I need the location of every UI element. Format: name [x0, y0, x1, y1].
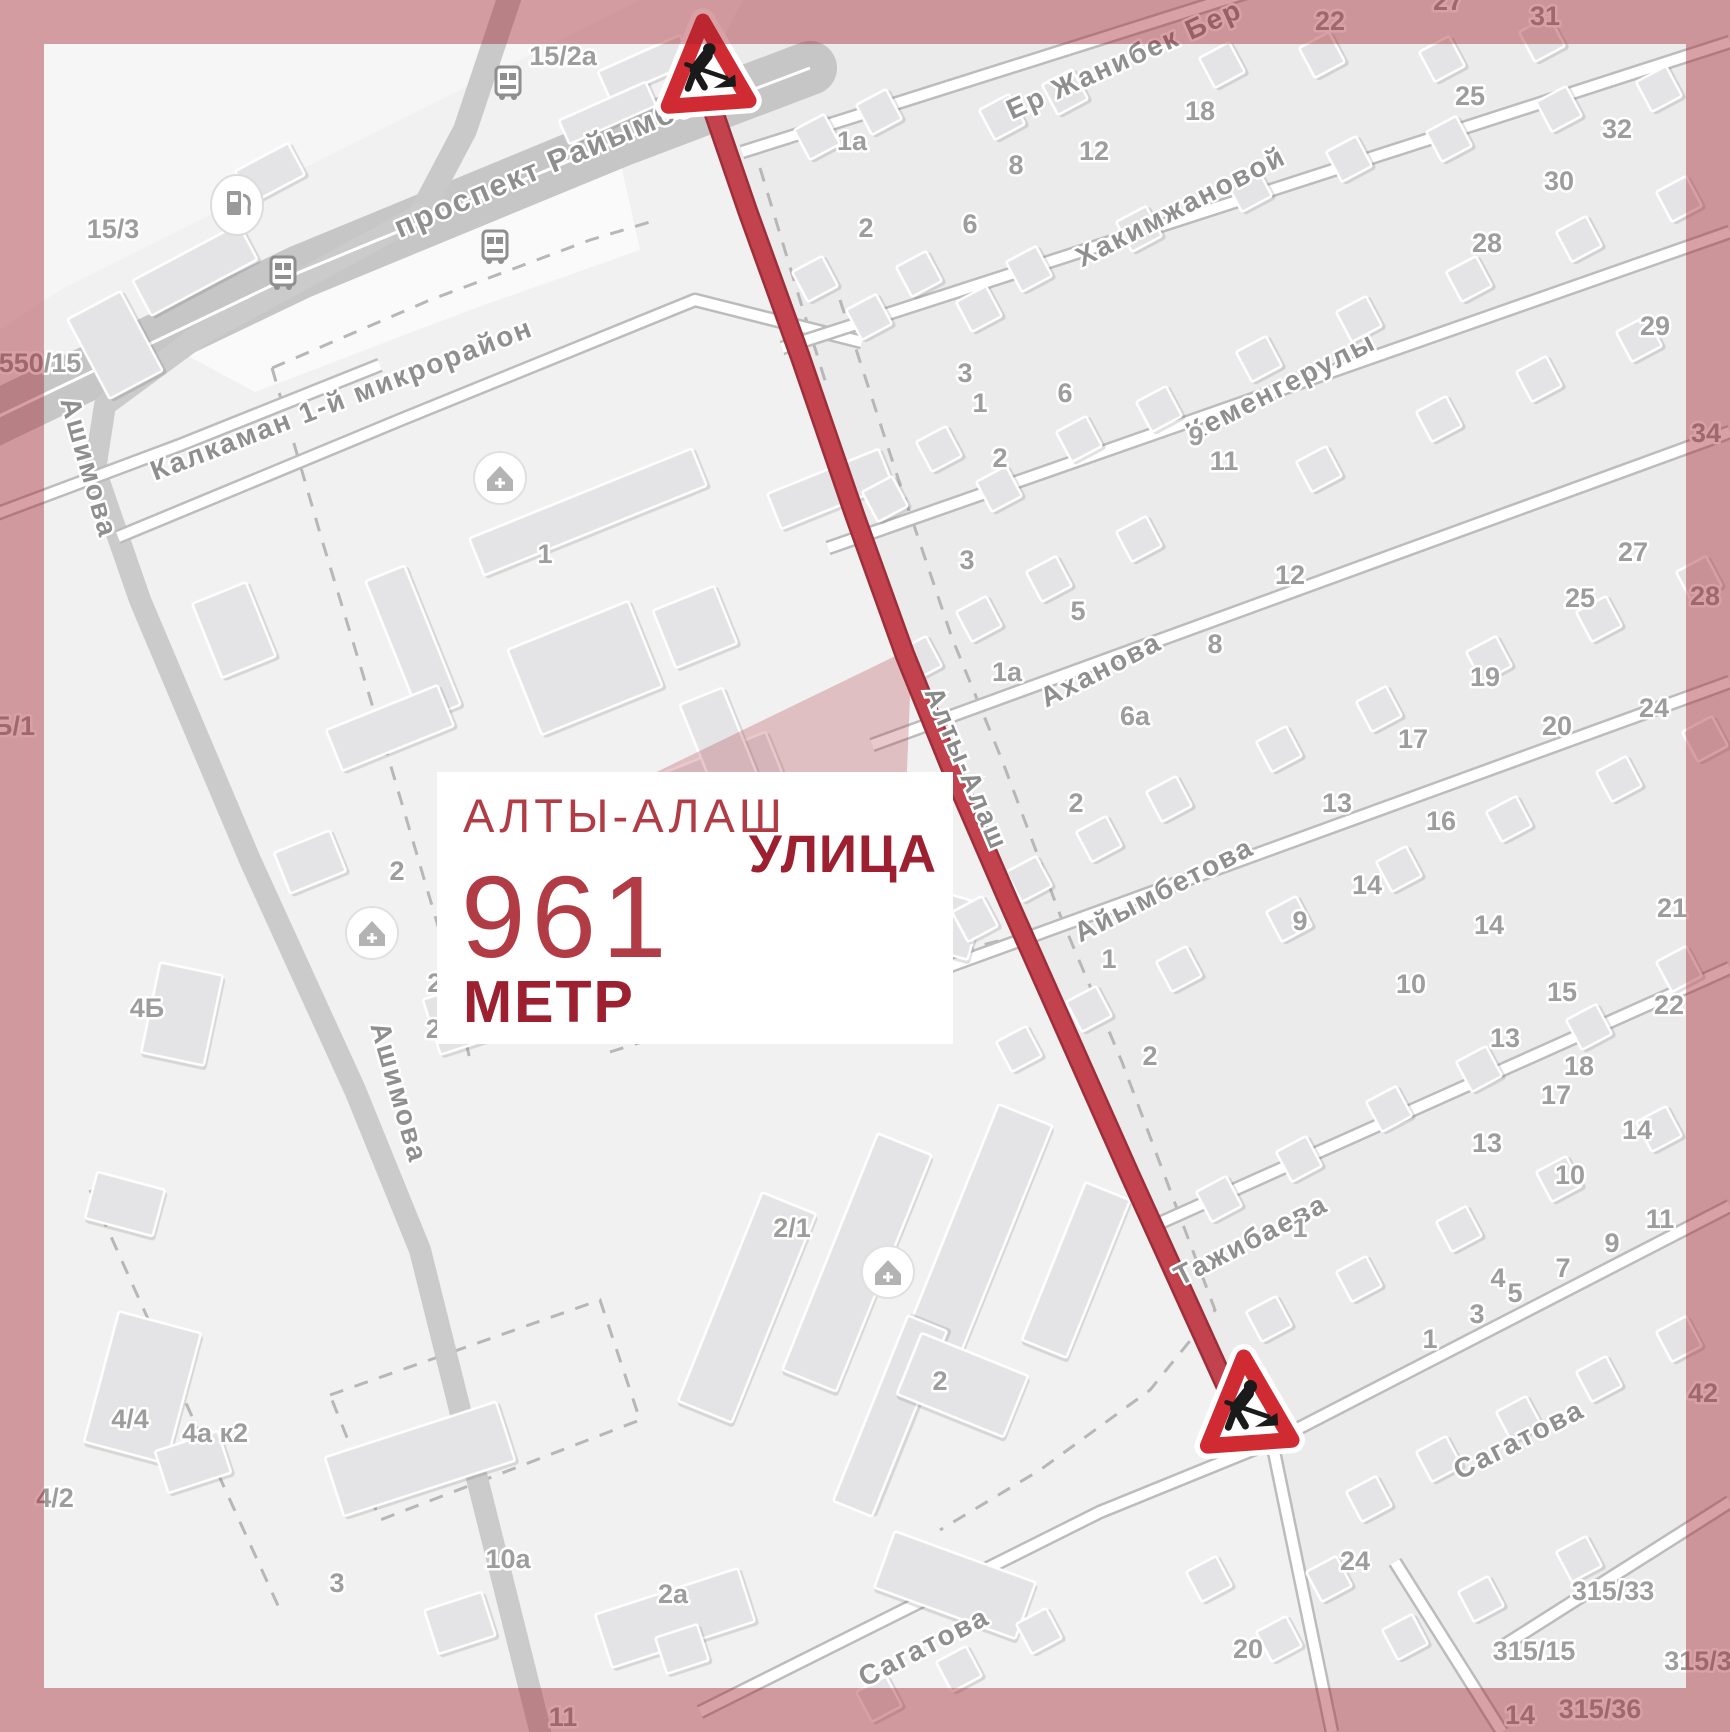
house-number-label: 25: [1565, 583, 1595, 613]
card-distance-unit-label: МЕТР: [463, 968, 635, 1036]
house-number-label: 18: [1564, 1051, 1594, 1081]
house-number-label: 14: [1622, 1115, 1652, 1145]
house-number-label: 3: [957, 358, 972, 388]
house-number-label: 1: [1292, 1213, 1307, 1243]
house-number-label: 29: [1640, 311, 1670, 341]
house-number-label: 8: [1008, 150, 1023, 180]
fuel-station-icon[interactable]: [211, 175, 263, 235]
house-number-label: 30: [1544, 166, 1574, 196]
house-number-label: 3: [1469, 1299, 1484, 1329]
house-number-label: 2: [389, 856, 404, 886]
house-number-label: 12: [1275, 560, 1305, 590]
house-number-label: 17: [1398, 724, 1428, 754]
house-number-label: 27: [1433, 0, 1463, 16]
house-number-label: 2: [858, 213, 873, 243]
house-number-label: 13: [1322, 788, 1352, 818]
bus-stop-icon[interactable]: [271, 257, 295, 290]
house-number-label: 4а к2: [182, 1418, 248, 1448]
house-number-label: 5: [1507, 1278, 1522, 1308]
house-number-label: 14: [1505, 1700, 1535, 1730]
house-number-label: 11: [549, 1702, 578, 1732]
house-number-label: 5: [1070, 596, 1085, 626]
house-number-label: 315/15: [1493, 1636, 1576, 1666]
house-number-label: 7: [1555, 1253, 1570, 1283]
building: [1186, 1556, 1232, 1602]
house-number-label: 31: [1530, 1, 1560, 31]
house-number-label: 17: [1541, 1080, 1571, 1110]
house-number-label: 6а: [1120, 701, 1151, 731]
house-number-label: 4/2: [36, 1483, 74, 1513]
house-number-label: 10а: [485, 1544, 531, 1574]
house-number-label: Б/1: [0, 711, 35, 741]
school-icon[interactable]: [862, 1246, 914, 1298]
house-number-label: 315/36: [1559, 1694, 1642, 1724]
building: [85, 1172, 165, 1236]
building: [1022, 1182, 1130, 1358]
house-number-label: 9: [1188, 421, 1203, 451]
house-number-label: 15/2а: [529, 41, 598, 71]
card-street-name: АЛТЫ-АЛАШ: [463, 788, 786, 843]
house-number-label: 3: [329, 1568, 344, 1598]
house-number-label: 22: [1315, 6, 1345, 36]
house-number-label: 315/3: [1664, 1646, 1730, 1676]
house-number-label: 8: [1207, 629, 1222, 659]
house-number-label: 1: [1422, 1324, 1437, 1354]
house-number-label: 13: [1472, 1128, 1502, 1158]
house-number-label: 19: [1470, 662, 1500, 692]
house-number-label: 2: [1068, 788, 1083, 818]
house-number-label: 315/33: [1572, 1576, 1655, 1606]
bus-stop-icon[interactable]: [496, 67, 520, 100]
house-number-label: 24: [1639, 693, 1669, 723]
house-number-label: 34: [1691, 418, 1721, 448]
house-number-label: 42: [1688, 1378, 1718, 1408]
house-number-label: 27: [1618, 537, 1648, 567]
house-number-label: 32: [1602, 114, 1632, 144]
house-number-label: 1: [537, 539, 552, 569]
house-number-label: 14: [1474, 910, 1504, 940]
house-number-label: 13: [1490, 1023, 1520, 1053]
building: [192, 582, 276, 678]
house-number-label: 6: [962, 209, 977, 239]
school-icon[interactable]: [474, 452, 526, 504]
route-info-card: АЛТЫ-АЛАШ УЛИЦА 961 МЕТР: [437, 772, 953, 1044]
house-number-label: 28: [1690, 581, 1720, 611]
house-number-label: 9: [1292, 906, 1307, 936]
school-icon[interactable]: [346, 907, 398, 959]
card-street-type-label: УЛИЦА: [749, 824, 937, 885]
house-number-label: 22: [1654, 990, 1684, 1020]
house-number-label: 9: [1604, 1228, 1619, 1258]
house-number-label: 6: [1057, 378, 1072, 408]
house-number-label: 12: [1079, 136, 1109, 166]
house-number-label: 20: [1233, 1634, 1263, 1664]
house-number-label: 2: [1142, 1041, 1157, 1071]
building: [274, 830, 346, 893]
house-number-label: 14: [1352, 870, 1382, 900]
building: [326, 685, 454, 771]
house-number-label: 11: [1646, 1204, 1675, 1234]
house-number-label: 20: [1542, 711, 1572, 741]
bus-stop-icon[interactable]: [483, 231, 507, 264]
house-number-label: 25: [1455, 81, 1485, 111]
house-number-label: 28: [1472, 228, 1502, 258]
house-number-label: 15/3: [87, 214, 140, 244]
card-distance-value: 961: [461, 850, 673, 984]
house-number-label: 11: [1210, 446, 1239, 476]
house-number-label: 24: [1340, 1546, 1370, 1576]
house-number-label: 1а: [837, 126, 868, 156]
house-number-label: 4: [1490, 1263, 1505, 1293]
building: [424, 1592, 495, 1654]
house-number-label: 15: [1547, 977, 1577, 1007]
house-number-label: 18: [1185, 96, 1215, 126]
building: [897, 1333, 1028, 1437]
house-number-label: 16: [1426, 806, 1456, 836]
house-number-label: 4/4: [111, 1404, 149, 1434]
house-number-label: 1: [1101, 944, 1116, 974]
house-number-label: 550/15: [0, 348, 81, 378]
building: [653, 586, 737, 668]
house-number-label: 1а: [992, 657, 1023, 687]
house-number-label: 2: [932, 1366, 947, 1396]
house-number-label: 2: [992, 443, 1007, 473]
house-number-label: 2/1: [773, 1213, 811, 1243]
house-number-label: 21: [1657, 893, 1687, 923]
building: [996, 1026, 1042, 1072]
house-number-label: 2а: [658, 1579, 689, 1609]
house-number-label: 10: [1396, 969, 1426, 999]
building: [508, 601, 663, 735]
house-number-label: 1: [972, 388, 987, 418]
map-canvas[interactable]: проспект РайымбекаКалкаман 1-й микрорайо…: [0, 0, 1730, 1732]
house-number-label: 4Б: [130, 993, 164, 1023]
house-number-label: 3: [959, 545, 974, 575]
house-number-label: 10: [1555, 1160, 1585, 1190]
